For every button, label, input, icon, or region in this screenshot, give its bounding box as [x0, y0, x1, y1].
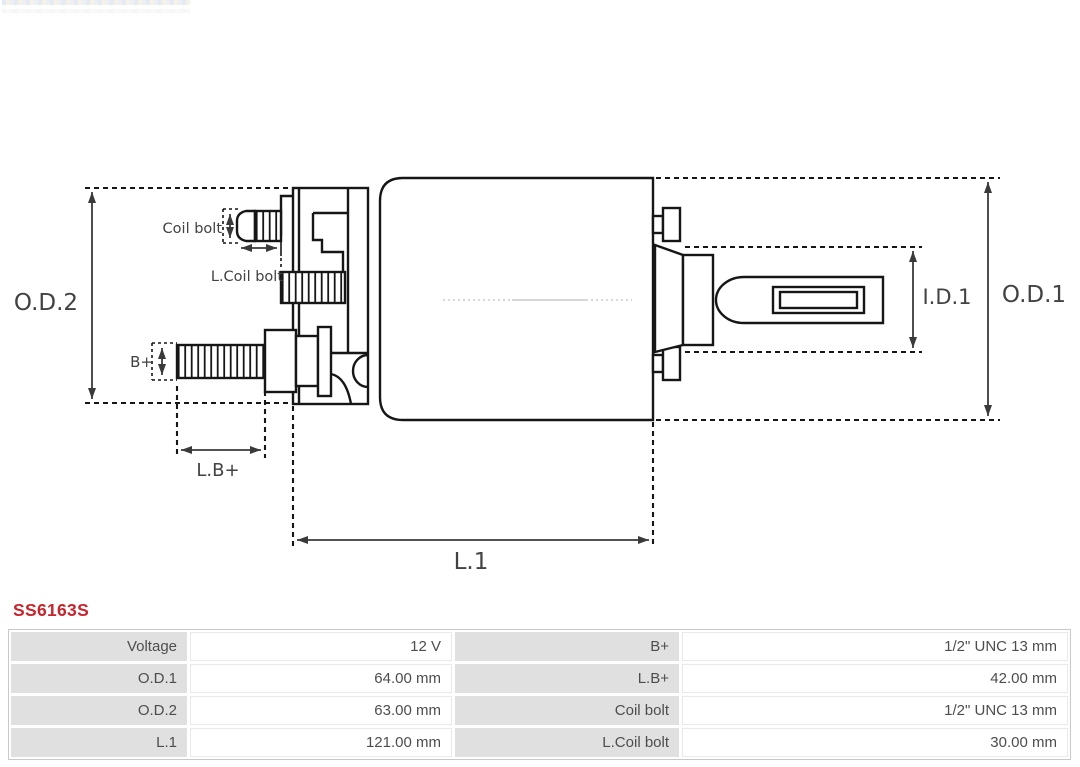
- end-cap-bolt-top: [653, 208, 680, 241]
- spec-value: 1/2" UNC 13 mm: [682, 696, 1068, 725]
- dim-label-id1: I.D.1: [922, 285, 971, 309]
- spec-label: L.B+: [455, 664, 679, 693]
- spec-value: 30.00 mm: [682, 728, 1068, 757]
- spec-label: Voltage: [11, 632, 187, 661]
- product-code: SS6163S: [13, 600, 89, 621]
- spec-label: Coil bolt: [455, 696, 679, 725]
- dim-label-coil-bolt: Coil bolt: [163, 221, 223, 237]
- spec-label: L.1: [11, 728, 187, 757]
- solenoid-dimension-diagram: O.D.2 O.D.1 I.D.1 L.1 L.B+ B+ Coil bolt …: [0, 0, 1080, 592]
- spec-value: 12 V: [190, 632, 452, 661]
- dim-label-bplus: B+: [130, 353, 153, 371]
- spec-value: 1/2" UNC 13 mm: [682, 632, 1068, 661]
- plunger-shaft: [655, 245, 883, 352]
- dim-label-l-coil-bolt: L.Coil bolt: [211, 269, 283, 285]
- spec-value: 42.00 mm: [682, 664, 1068, 693]
- dim-label-od2: O.D.2: [14, 290, 78, 316]
- dim-label-lbplus: L.B+: [196, 460, 239, 481]
- dim-label-od1: O.D.1: [1002, 282, 1066, 308]
- spec-table: Voltage 12 V B+ 1/2" UNC 13 mm O.D.1 64.…: [8, 629, 1071, 760]
- spec-label: B+: [455, 632, 679, 661]
- dim-label-l1: L.1: [454, 549, 489, 575]
- spec-label: O.D.1: [11, 664, 187, 693]
- spec-value: 63.00 mm: [190, 696, 452, 725]
- spec-label: L.Coil bolt: [455, 728, 679, 757]
- solenoid-body: [380, 178, 653, 420]
- spec-value: 121.00 mm: [190, 728, 452, 757]
- spec-value: 64.00 mm: [190, 664, 452, 693]
- spec-label: O.D.2: [11, 696, 187, 725]
